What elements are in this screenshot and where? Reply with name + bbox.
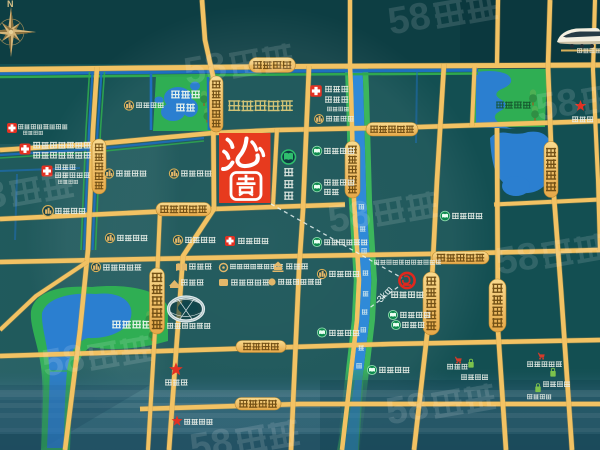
svg-text:58: 58 [181, 45, 230, 94]
svg-text:58: 58 [533, 81, 582, 130]
svg-text:58: 58 [325, 193, 374, 242]
svg-text:58: 58 [385, 0, 434, 44]
svg-text:N: N [7, 0, 14, 9]
svg-text:58: 58 [493, 235, 542, 284]
svg-text:58: 58 [39, 337, 88, 386]
svg-text:58: 58 [383, 385, 432, 434]
